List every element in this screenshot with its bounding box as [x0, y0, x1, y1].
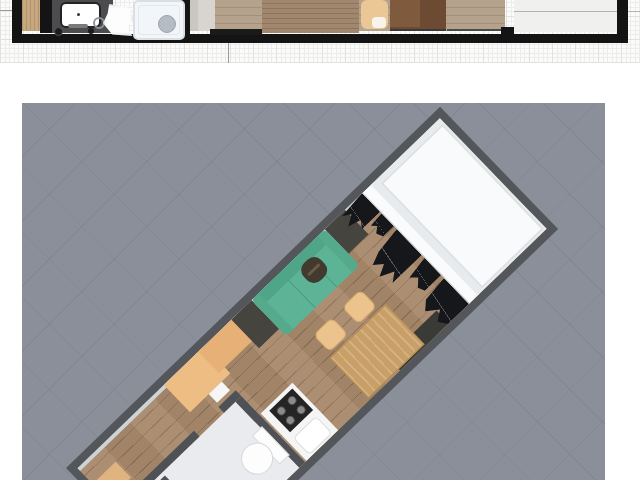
- area-rug[interactable]: [262, 0, 359, 33]
- vanity-knob-right: [88, 28, 94, 34]
- sofa-cushion-seam-1: [289, 280, 316, 308]
- vanity-knob-left: [54, 27, 63, 36]
- burner-2: [286, 394, 299, 407]
- burner-1: [275, 405, 288, 418]
- faucet: [68, 24, 88, 28]
- burner-3: [284, 414, 297, 427]
- entry-door[interactable]: [22, 0, 40, 31]
- exterior-wall-right: [617, 0, 628, 43]
- dimension-line-vertical: [228, 43, 229, 63]
- shower-tray[interactable]: [133, 0, 185, 40]
- bag-strap: [307, 263, 321, 276]
- shower-drain: [158, 15, 176, 33]
- entry-shelf[interactable]: [97, 462, 131, 480]
- balcony-floor-2d: [514, 0, 617, 32]
- balcony-guide-line: [514, 11, 617, 12]
- burner-4: [295, 404, 308, 417]
- dresser-left-section: [390, 0, 420, 27]
- hallway-floor-shade: [190, 0, 198, 31]
- wood-floor-a: [215, 0, 262, 31]
- planner-window: [0, 0, 640, 480]
- wall-notch: [501, 27, 514, 35]
- view-divider-gap: [0, 63, 640, 103]
- pillow: [372, 17, 386, 28]
- exterior-wall-bottom: [12, 34, 628, 43]
- plan-2d-view[interactable]: [0, 0, 640, 63]
- wall-stub-entry: [40, 0, 52, 33]
- tv-stand-2d[interactable]: [210, 29, 262, 35]
- dresser[interactable]: [390, 0, 446, 29]
- view-3d-viewport[interactable]: [22, 103, 605, 480]
- sliding-track: [447, 29, 501, 31]
- exterior-wall-left: [12, 0, 22, 43]
- dresser-shadow: [390, 29, 446, 31]
- sink-drain-dot: [77, 13, 80, 16]
- balcony-guide-line-outer: [628, 11, 640, 12]
